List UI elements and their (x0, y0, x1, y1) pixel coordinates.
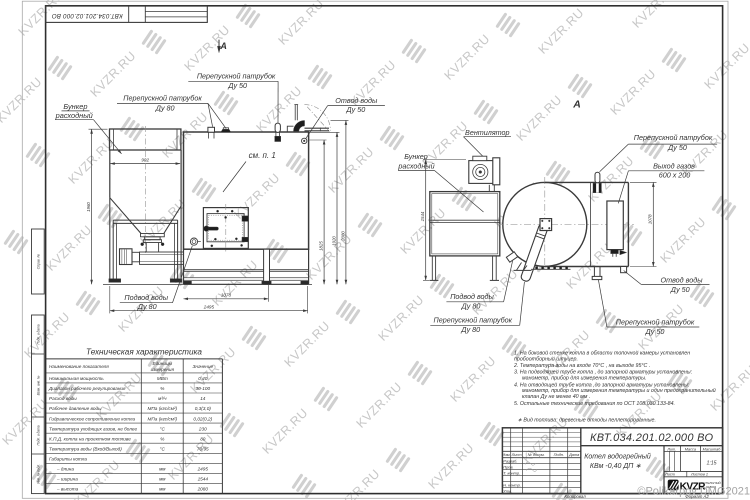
svg-text:Н. контр.: Н. контр. (503, 483, 521, 488)
svg-text:Лист: Лист (511, 452, 523, 457)
svg-text:Утв.: Утв. (503, 488, 512, 493)
svg-text:пробоотборный штуцер.: пробоотборный штуцер. (514, 356, 578, 363)
svg-text:Копировал: Копировал (564, 494, 586, 499)
svg-text:– высота: – высота (56, 487, 79, 492)
svg-text:см. п. 1: см. п. 1 (249, 151, 276, 160)
svg-text:МПа (кгс/см²): МПа (кгс/см²) (148, 406, 178, 411)
svg-text:Дата: Дата (568, 452, 580, 457)
svg-text:1544: 1544 (198, 477, 209, 482)
svg-text:230: 230 (198, 426, 207, 431)
svg-text:Подп. и дата: Подп. и дата (37, 324, 41, 344)
svg-text:Бункер: Бункер (404, 152, 427, 161)
svg-text:Перепускной патрубок: Перепускной патрубок (616, 318, 695, 327)
svg-text:измерения: измерения (151, 367, 175, 372)
svg-text:1078: 1078 (647, 214, 652, 224)
svg-text:70/95: 70/95 (197, 446, 209, 451)
svg-text:80: 80 (200, 436, 206, 441)
svg-text:Ду 80: Ду 80 (460, 325, 480, 334)
svg-text:МВт: МВт (157, 376, 168, 381)
svg-text:К.П.Д. котла на проектном топл: К.П.Д. котла на проектном топливе (49, 436, 131, 441)
svg-text:Единицы: Единицы (152, 361, 172, 366)
svg-text:2495: 2495 (203, 305, 215, 310)
svg-text:%: % (160, 386, 164, 391)
svg-text:Лит.: Лит. (666, 447, 676, 451)
svg-text:МПа (кгс/см²): МПа (кгс/см²) (148, 416, 178, 421)
svg-text:Перепускной патрубок: Перепускной патрубок (123, 94, 202, 103)
svg-text:Ду 50: Ду 50 (346, 105, 366, 114)
svg-text:1:15: 1:15 (706, 460, 716, 466)
svg-text:мм: мм (159, 467, 166, 472)
svg-text:Инв. № подл.: Инв. № подл. (37, 464, 41, 484)
svg-text:14: 14 (200, 396, 206, 401)
svg-text:Перепускной патрубок: Перепускной патрубок (197, 72, 276, 81)
svg-text:Разраб.: Разраб. (503, 459, 517, 464)
svg-text:расходный: расходный (397, 161, 434, 170)
svg-text:Значение: Значение (193, 364, 214, 369)
svg-text:Подвод воды: Подвод воды (450, 292, 494, 301)
svg-text:КВТ.034.201.02.000 ВО: КВТ.034.201.02.000 ВО (590, 432, 713, 444)
svg-text:3. На подводящей трубе котла: 3. На подводящей трубе котла , до запорн… (514, 368, 693, 375)
svg-text:Масса: Масса (685, 447, 696, 451)
svg-text:Отвод воды: Отвод воды (661, 276, 704, 285)
svg-text:1. На боковой стенке котла в: 1. На боковой стенке котла в области топ… (514, 350, 690, 357)
svg-text:Перепускной патрубок: Перепускной патрубок (434, 315, 513, 324)
svg-text:Рабочее давление воды: Рабочее давление воды (49, 406, 102, 411)
svg-text:Пров.: Пров. (503, 465, 513, 470)
svg-text:Ду 50: Ду 50 (670, 285, 690, 294)
svg-text:1960: 1960 (86, 202, 91, 212)
svg-text:30-100: 30-100 (195, 386, 210, 391)
svg-text:5. Остальные технические треб: 5. Остальные технические требования по О… (514, 401, 675, 407)
svg-text:Габариты котла: Габариты котла (49, 457, 87, 462)
svg-text:м³/ч: м³/ч (158, 396, 167, 401)
svg-text:Листов 1: Листов 1 (690, 473, 708, 477)
svg-text:Ду 50: Ду 50 (667, 143, 687, 152)
svg-text:Ду 50: Ду 50 (645, 327, 665, 336)
svg-text:Подвод воды: Подвод воды (124, 293, 168, 302)
svg-text:манометр, прибор для измерения: манометр, прибор для измерения температу… (522, 376, 646, 382)
svg-text:КВТ.034.201.02.000 ВО: КВТ.034.201.02.000 ВО (52, 12, 123, 19)
svg-text:мм: мм (159, 477, 166, 482)
svg-text:1920: 1920 (331, 236, 336, 246)
svg-text:Подп. и дата: Подп. и дата (37, 425, 41, 445)
svg-text:Перепускной патрубок: Перепускной патрубок (634, 133, 713, 142)
svg-text:Бункер: Бункер (63, 102, 87, 111)
svg-text:Температура воды (Вход/Выход): Температура воды (Вход/Выход) (49, 446, 122, 451)
svg-text:расходный: расходный (55, 111, 93, 120)
svg-text:Гидравлическое сопротивление к: Гидравлическое сопротивление котла (49, 416, 136, 421)
svg-text:Ду 80: Ду 80 (137, 302, 157, 311)
svg-text:Масштаб: Масштаб (703, 447, 722, 451)
svg-text:Выход газов: Выход газов (653, 161, 695, 170)
svg-text:Ду 50: Ду 50 (227, 81, 247, 90)
svg-text:600 x 200: 600 x 200 (659, 171, 691, 180)
svg-text:Взам. инв. №: Взам. инв. № (37, 375, 41, 395)
svg-text:А: А (219, 41, 227, 51)
svg-text:2495: 2495 (197, 467, 209, 472)
svg-text:Отвод воды: Отвод воды (335, 96, 378, 105)
svg-text:Наименование показателя: Наименование показателя (49, 364, 109, 369)
svg-text:– ширина: – ширина (56, 477, 78, 482)
svg-text:клапан Ду не менее 40 мм .: клапан Ду не менее 40 мм . (522, 394, 590, 400)
svg-text:Температура уходящих газов, не: Температура уходящих газов, не более (49, 426, 138, 431)
svg-text:Изм.: Изм. (502, 452, 510, 457)
svg-text:1078: 1078 (221, 293, 232, 298)
svg-text:0,3(3,0): 0,3(3,0) (195, 406, 212, 411)
svg-text:Ду 80: Ду 80 (155, 103, 175, 112)
svg-text:%: % (160, 436, 164, 441)
svg-text:°С: °С (160, 426, 166, 431)
svg-text:0,02(0,2): 0,02(0,2) (193, 416, 212, 421)
svg-text:Диапазон рабочего регулировани: Диапазон рабочего регулирования (48, 386, 126, 391)
svg-text:манометр, прибор для измерения: манометр, прибор для измерения температу… (522, 387, 716, 394)
svg-text:Вентилятор: Вентилятор (465, 128, 510, 137)
svg-text:Расход воды: Расход воды (49, 396, 77, 401)
svg-text:©Polikarpov DMG2021: ©Polikarpov DMG2021 (637, 486, 750, 498)
svg-text:2080: 2080 (340, 231, 345, 242)
svg-text:Подп.: Подп. (554, 452, 564, 457)
svg-text:Номинальная мощность: Номинальная мощность (49, 376, 104, 381)
svg-text:– длина: – длина (56, 467, 74, 472)
svg-text:КВм -0,40 ДП ∗: КВм -0,40 ДП ∗ (590, 463, 641, 470)
svg-text:Ду 80: Ду 80 (461, 301, 481, 310)
svg-text:2080: 2080 (197, 487, 209, 492)
svg-text:Техническая характеристика: Техническая характеристика (86, 348, 202, 357)
svg-text:Справ. №: Справ. № (37, 253, 41, 269)
svg-text:Лист: Лист (664, 473, 675, 477)
svg-text:Котел водогрейный: Котел водогрейный (584, 453, 651, 461)
svg-text:А: А (572, 99, 581, 111)
svg-text:2. Температура воды на входе: 2. Температура воды на входе 70°С , на в… (513, 363, 650, 369)
svg-text:°С: °С (160, 446, 166, 451)
svg-text:1825: 1825 (319, 241, 324, 251)
svg-text:0,40: 0,40 (198, 376, 208, 381)
svg-text:№ докум.: № докум. (528, 452, 545, 457)
svg-text:∗ Вид топлива: древесные отх: ∗ Вид топлива: древесные отходы пеллетир… (518, 418, 656, 424)
svg-text:Т. контр.: Т. контр. (503, 471, 520, 476)
svg-text:1544: 1544 (420, 211, 425, 221)
svg-text:мм: мм (159, 487, 166, 492)
